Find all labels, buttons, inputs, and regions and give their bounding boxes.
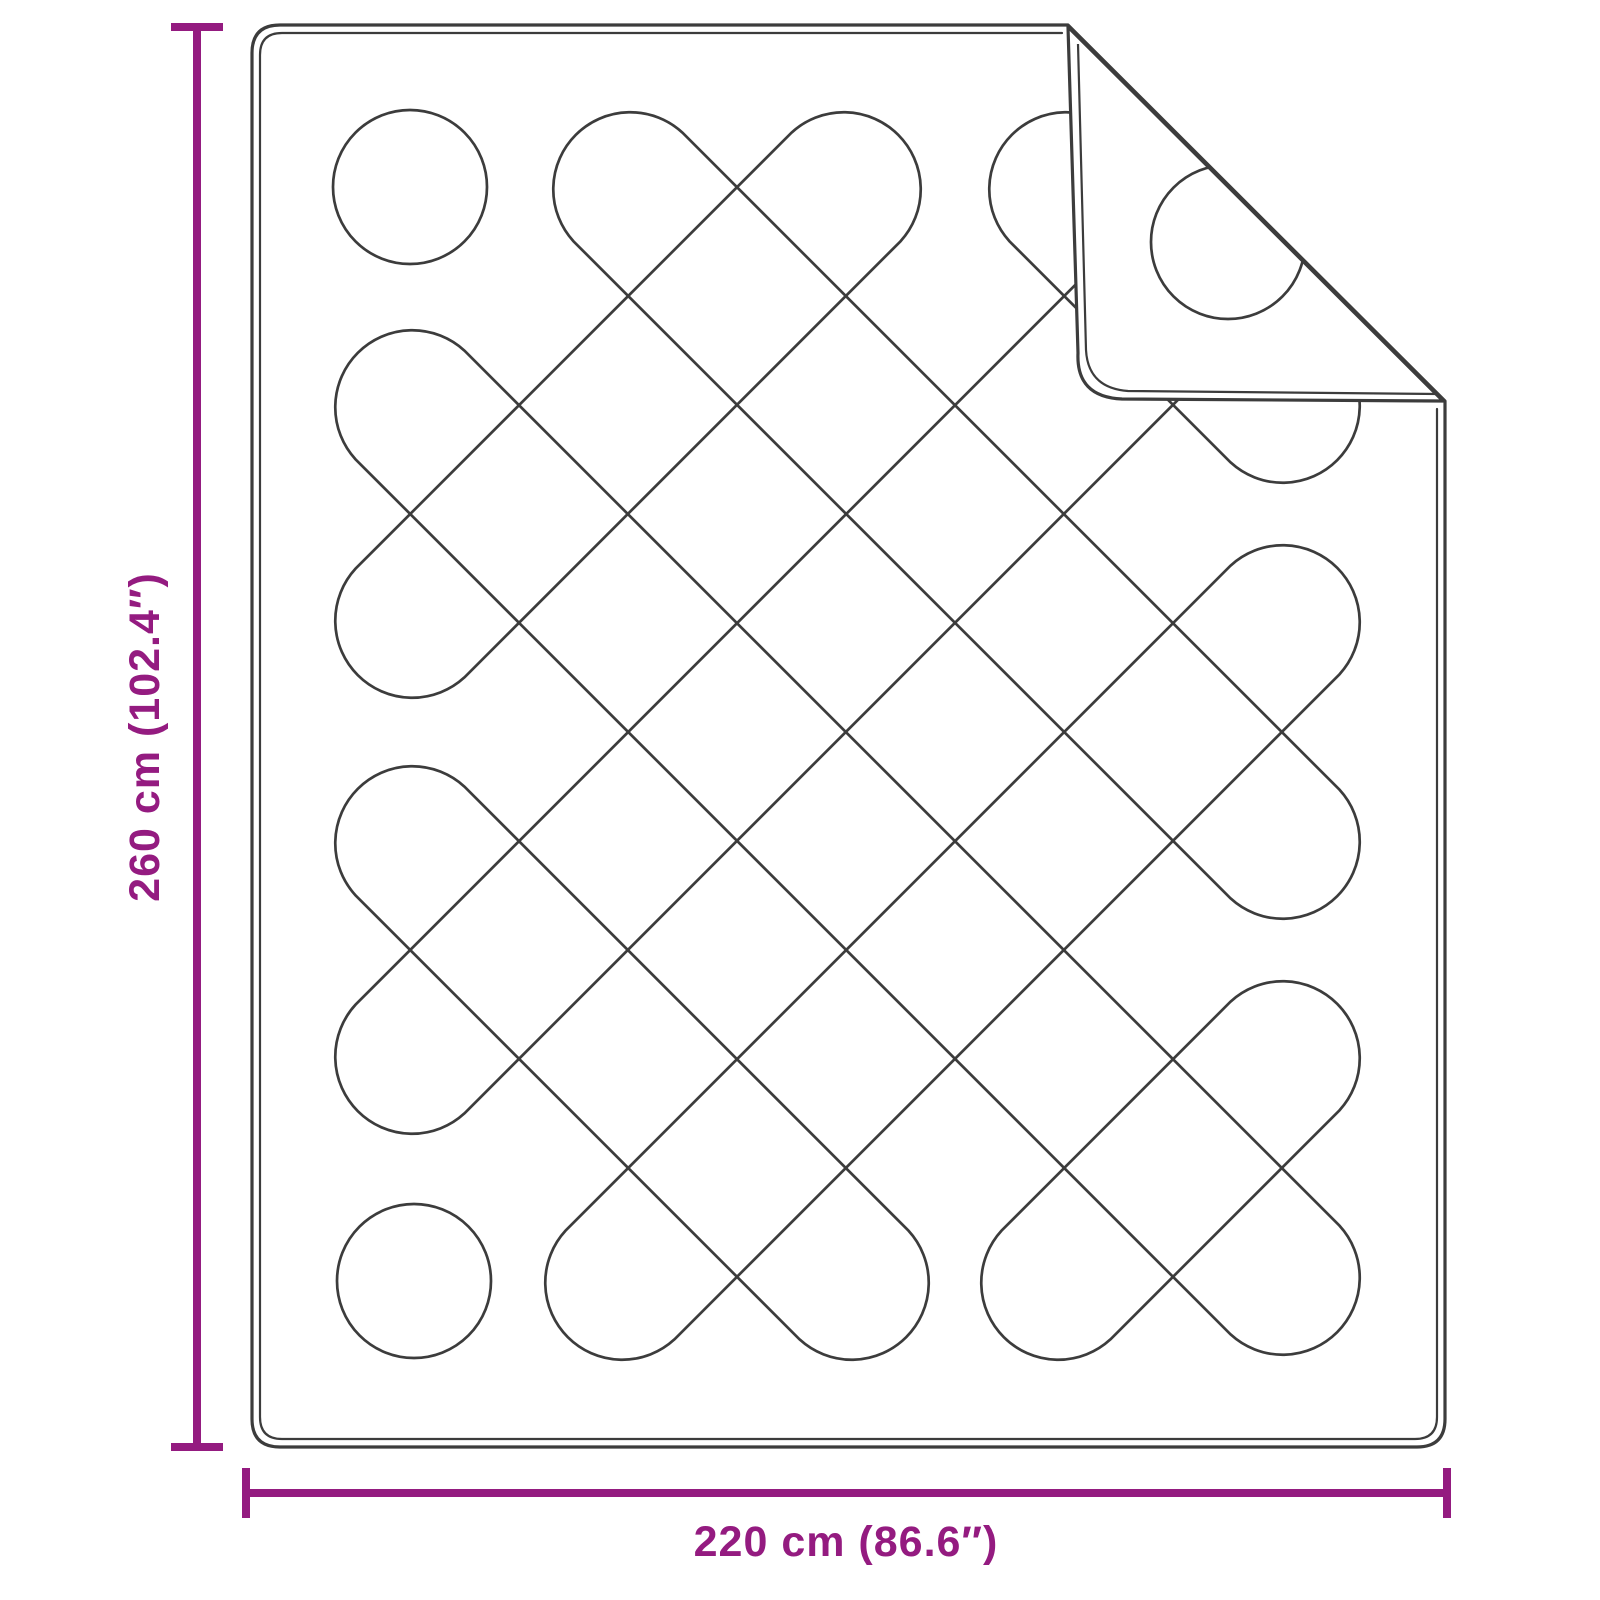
folded-corner-flap: [1068, 27, 1443, 401]
width-dimension: 220 cm (86.6″): [246, 1468, 1447, 1566]
width-dimension-label: 220 cm (86.6″): [694, 1518, 999, 1566]
height-dimension: 260 cm (102.4″): [121, 27, 223, 1447]
product-dimension-diagram: 260 cm (102.4″) 220 cm (86.6″): [0, 0, 1600, 1600]
height-dimension-label: 260 cm (102.4″): [121, 572, 169, 902]
diagram-canvas: 260 cm (102.4″) 220 cm (86.6″): [0, 0, 1600, 1600]
